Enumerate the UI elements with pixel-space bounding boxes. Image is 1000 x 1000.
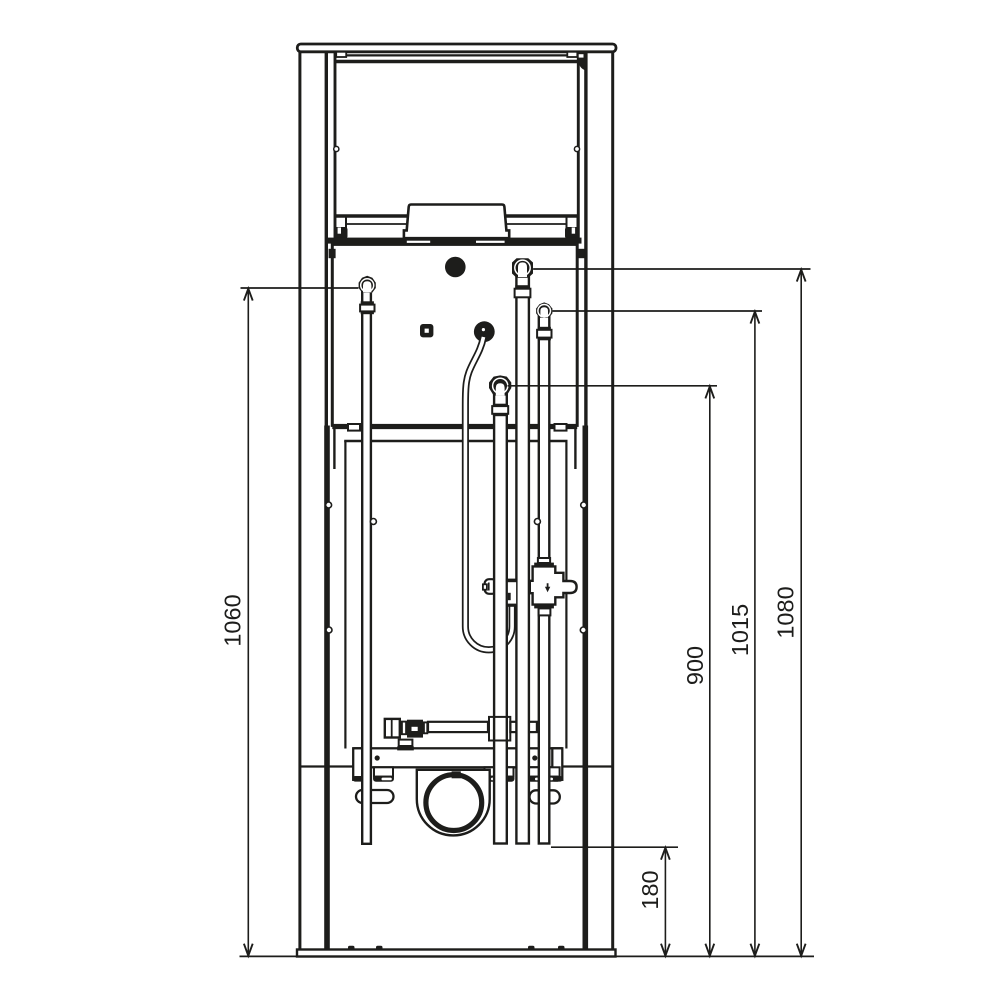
svg-text:900: 900 — [682, 646, 708, 685]
svg-text:180: 180 — [637, 870, 663, 909]
svg-text:1060: 1060 — [220, 594, 246, 646]
svg-text:1015: 1015 — [727, 604, 753, 656]
svg-text:1080: 1080 — [773, 586, 799, 638]
